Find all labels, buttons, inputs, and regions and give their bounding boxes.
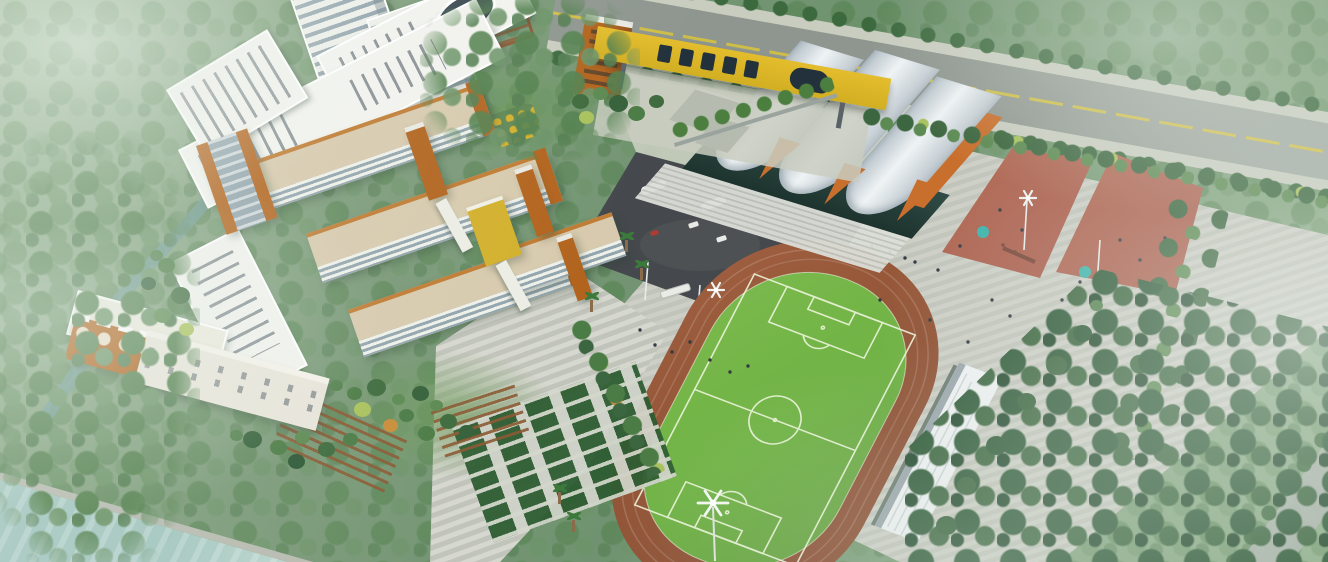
garden-tree-cluster xyxy=(330,380,343,391)
palm-tree xyxy=(590,300,593,312)
river-bank-trees xyxy=(230,430,243,441)
aerial-campus-rendering xyxy=(0,0,1328,562)
gate-glyph-slot xyxy=(722,56,738,75)
gate-glyph-slot xyxy=(743,60,759,79)
west-forest-strip xyxy=(0,130,200,562)
palm-tree xyxy=(640,268,643,280)
north-garden-trees xyxy=(420,0,640,160)
gate-garden-trees xyxy=(560,90,573,101)
canal-bank-trees xyxy=(150,250,163,261)
palm-tree xyxy=(625,240,628,252)
gate-glyph-slot xyxy=(700,52,716,71)
forest-edge-trees xyxy=(1090,300,1103,311)
gate-glyph-slot xyxy=(678,48,694,67)
palm-tree xyxy=(558,492,561,504)
palm-tree xyxy=(572,520,575,532)
gate-glyph-slot xyxy=(657,44,673,63)
